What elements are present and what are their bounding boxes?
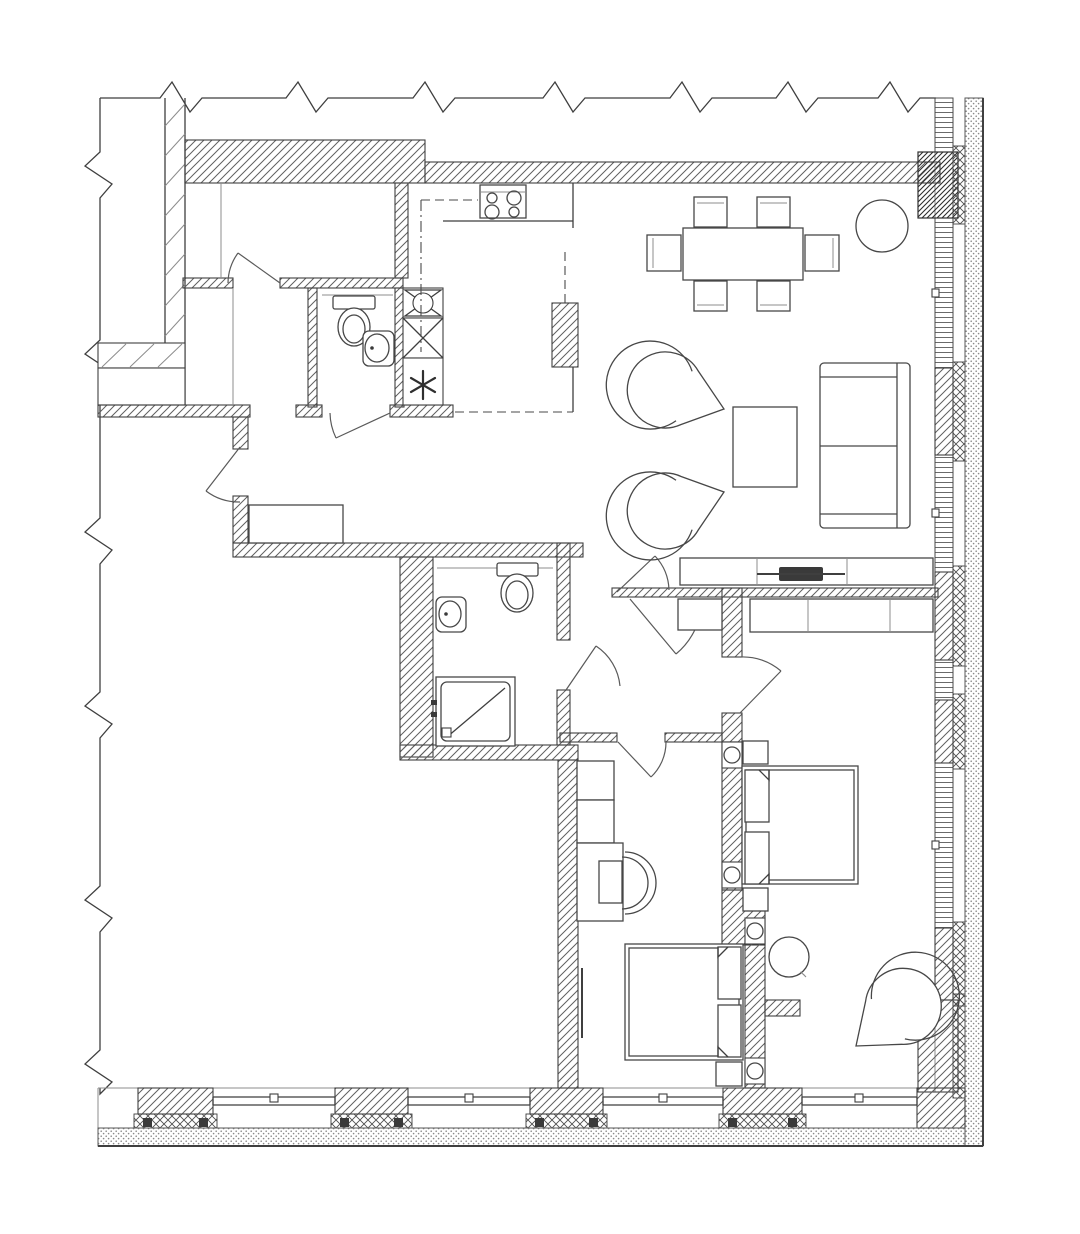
dining-chair xyxy=(694,197,727,227)
insulation xyxy=(953,146,965,224)
wall-hall-south xyxy=(233,543,583,557)
cladding xyxy=(98,1128,965,1146)
sofa xyxy=(820,363,910,528)
party-wall-ticks xyxy=(165,104,185,336)
window-tick xyxy=(465,1094,473,1102)
dining-chair xyxy=(757,197,790,227)
top-wall xyxy=(185,140,940,183)
wall-wc-top xyxy=(280,278,403,288)
upper-cabinets xyxy=(421,200,573,412)
facade-pier xyxy=(723,1088,802,1114)
dining-chair xyxy=(757,281,790,311)
wall-hall-stub xyxy=(233,496,248,543)
second-bedroom-furniture xyxy=(577,761,743,1086)
window-tick xyxy=(932,841,939,849)
fan-symbol xyxy=(413,293,433,313)
facade-corner xyxy=(917,1088,965,1128)
door-swing-bedroom2 xyxy=(618,742,666,777)
fan-armchair xyxy=(595,330,738,451)
top-wall-thick xyxy=(185,140,425,183)
service-shaft xyxy=(403,288,443,405)
wall-entry-south xyxy=(98,405,250,417)
floor-plan-canvas xyxy=(0,0,1080,1234)
bottom-facade xyxy=(98,1088,983,1146)
door-swing-living xyxy=(617,556,669,592)
pillow xyxy=(745,770,769,822)
kitchen-column xyxy=(552,303,578,367)
cabinet xyxy=(577,761,614,800)
wall-shaft-bottom xyxy=(390,405,453,417)
window-band xyxy=(935,98,953,152)
facade-pier xyxy=(530,1088,603,1114)
wall-nook-stub-left xyxy=(765,1000,800,1016)
wall-bedroom2-west xyxy=(558,760,578,1088)
wall-bath-south xyxy=(400,745,578,760)
dining-chair xyxy=(694,281,727,311)
round-table xyxy=(769,937,809,977)
insulation xyxy=(953,566,965,666)
dining-set xyxy=(647,197,908,311)
kitchen xyxy=(421,183,578,412)
facade-pier xyxy=(935,368,953,455)
wall-bedroom2-north-b xyxy=(665,733,722,742)
pier-feet xyxy=(143,1118,797,1127)
dining-chair xyxy=(647,235,681,271)
facade-pier xyxy=(335,1088,408,1114)
wall-kitchen-west xyxy=(395,183,408,278)
wall-corridor-left xyxy=(183,278,233,288)
door-swing-entry xyxy=(206,447,240,502)
wall-master-west-a xyxy=(722,588,742,657)
wall-bath-west xyxy=(400,557,433,757)
dining-table xyxy=(683,228,803,280)
door-swing-corridor-top xyxy=(228,253,280,283)
fan-armchair xyxy=(595,450,738,571)
wall-wc-bottom-stub xyxy=(296,405,322,417)
round-plant xyxy=(856,200,908,252)
wc-room xyxy=(322,295,394,366)
wall-wc-left xyxy=(308,288,317,407)
facade-pier xyxy=(935,572,953,660)
wall-bedroom2-north-a xyxy=(560,733,617,742)
wall-bath-east-top xyxy=(557,543,570,640)
coffee-table xyxy=(733,407,797,487)
insulation xyxy=(953,694,965,769)
pillow xyxy=(718,947,741,999)
wall-master-west-b xyxy=(722,713,742,742)
interior-walls xyxy=(98,183,938,1088)
wall-entry-stub xyxy=(233,417,248,449)
tv-console xyxy=(680,558,933,585)
nightstand xyxy=(743,741,768,764)
nightstand xyxy=(716,1062,742,1086)
nightstand xyxy=(743,888,768,911)
cabinet xyxy=(577,800,614,843)
bathroom xyxy=(431,563,553,746)
corridor-closet xyxy=(678,599,722,630)
washbasin xyxy=(363,331,394,366)
facade-pier-dark xyxy=(918,152,958,218)
living-furniture xyxy=(595,330,933,585)
party-wall xyxy=(98,98,185,405)
shower-tray xyxy=(431,677,515,746)
wall-living-south xyxy=(612,588,938,597)
window-band xyxy=(935,660,953,700)
toilet xyxy=(497,563,538,612)
window-tick xyxy=(855,1094,863,1102)
door-swing-wc xyxy=(330,413,390,438)
double-bed xyxy=(625,944,743,1060)
pillow xyxy=(745,832,769,884)
insulation xyxy=(953,362,965,461)
window-tick xyxy=(270,1094,278,1102)
top-wall-thin xyxy=(425,162,940,183)
door-swing-bathroom xyxy=(566,646,620,690)
window-tick xyxy=(659,1094,667,1102)
door-swing-master xyxy=(740,657,781,713)
insulation xyxy=(953,994,965,1098)
double-bed xyxy=(742,766,858,884)
cladding xyxy=(965,98,983,1146)
hall-cabinet xyxy=(249,505,343,543)
left-break-line xyxy=(85,98,112,1094)
dining-chair xyxy=(805,235,839,271)
facade-pier xyxy=(935,700,953,763)
wardrobe xyxy=(750,599,933,632)
washbasin xyxy=(436,597,466,632)
window-tick xyxy=(932,509,939,517)
pillow xyxy=(718,1005,741,1057)
facade-pier xyxy=(138,1088,213,1114)
top-break-line xyxy=(100,82,936,112)
party-wall-niche xyxy=(98,368,185,405)
window-tick xyxy=(932,289,939,297)
